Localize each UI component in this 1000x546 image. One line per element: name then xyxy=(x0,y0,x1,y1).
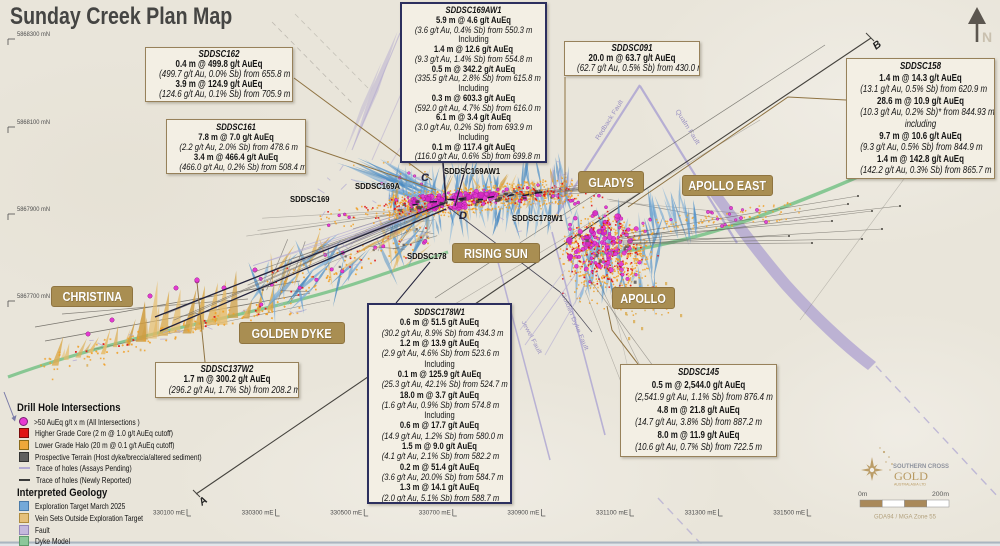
svg-text:331100 mE: 331100 mE xyxy=(596,510,629,517)
svg-text:330500 mE: 330500 mE xyxy=(330,510,363,517)
svg-text:5867900 mN: 5867900 mN xyxy=(17,206,50,213)
svg-text:AUSTRALASIA LTD: AUSTRALASIA LTD xyxy=(894,483,927,487)
svg-text:0m: 0m xyxy=(858,491,868,498)
svg-text:330300 mE: 330300 mE xyxy=(242,510,275,517)
svg-text:200m: 200m xyxy=(932,491,949,498)
svg-text:330900 mE: 330900 mE xyxy=(507,510,540,517)
svg-text:330700 mE: 330700 mE xyxy=(419,510,452,517)
svg-text:5867700 mN: 5867700 mN xyxy=(17,293,50,300)
svg-text:GDA94 / MGA Zone 55: GDA94 / MGA Zone 55 xyxy=(874,514,936,521)
svg-text:5868100 mN: 5868100 mN xyxy=(17,119,50,126)
svg-text:N: N xyxy=(982,29,992,45)
svg-text:C: C xyxy=(421,172,430,184)
svg-text:Redback Fault: Redback Fault xyxy=(594,99,625,142)
svg-text:GOLD: GOLD xyxy=(894,469,928,483)
svg-text:331500 mE: 331500 mE xyxy=(773,510,806,517)
svg-text:331300 mE: 331300 mE xyxy=(685,510,718,517)
svg-text:5868300 mN: 5868300 mN xyxy=(17,31,50,38)
svg-text:D: D xyxy=(459,210,467,222)
